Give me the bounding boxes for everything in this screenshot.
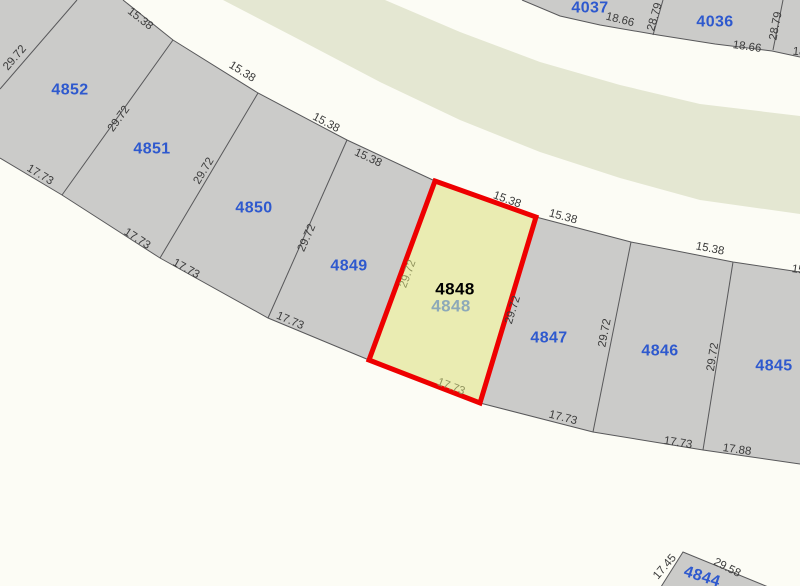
lot-label-4037: 4037 bbox=[571, 0, 608, 17]
lot-label-4845: 4845 bbox=[755, 358, 792, 375]
lot-label-4848-selected-secondary: 4848 bbox=[431, 297, 470, 316]
lot-label-4849: 4849 bbox=[330, 258, 367, 275]
lot-label-4847: 4847 bbox=[530, 330, 567, 347]
lot-label-4846: 4846 bbox=[641, 343, 678, 360]
map-viewport[interactable]: 15.3815.3815.3815.3815.3815.3815.3815.38… bbox=[0, 0, 800, 586]
map-svg[interactable]: 15.3815.3815.3815.3815.3815.3815.3815.38… bbox=[0, 0, 800, 586]
lot-label-4850: 4850 bbox=[235, 200, 272, 217]
lot-label-4852: 4852 bbox=[51, 82, 88, 99]
lot-label-4036: 4036 bbox=[696, 14, 733, 31]
lot-label-4851: 4851 bbox=[133, 141, 170, 158]
